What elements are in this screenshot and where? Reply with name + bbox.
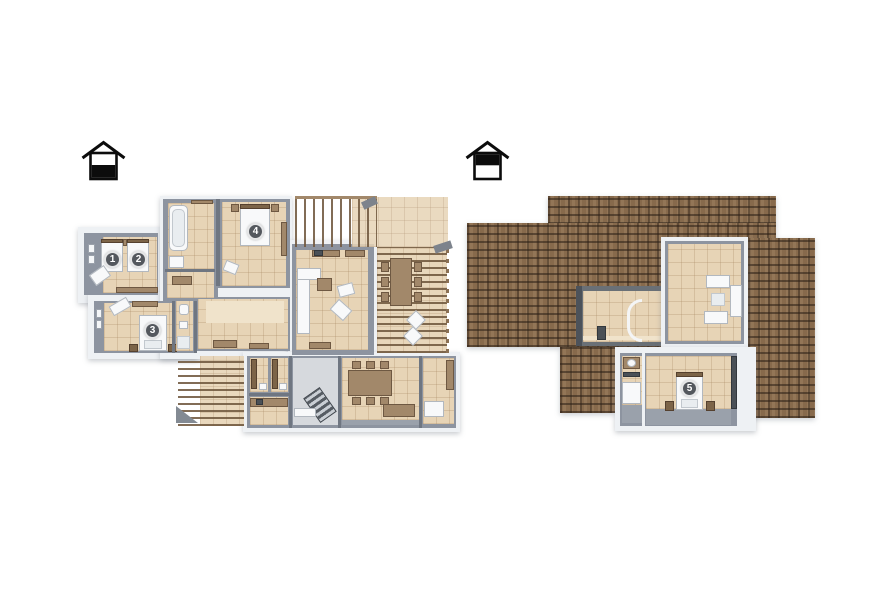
landing-wall-edge [576,286,582,346]
stair-post [597,326,606,340]
wall-shadow [731,356,737,409]
attic-floor-plan: 5 [0,0,896,597]
coffee-table [711,293,725,306]
sink [627,359,636,367]
stair-railing [627,299,642,342]
roof-section-right [748,238,815,418]
nightstand [706,401,715,411]
sofa [730,285,742,317]
bathroom-shelf [623,372,640,377]
bed-5-footboard [681,399,698,408]
house-attic-floor-icon [465,140,510,181]
landing-floor [583,291,661,342]
nightstand [665,401,674,411]
floorplan-canvas: 1 2 3 4 [0,0,896,597]
roof-section-top [548,196,776,224]
armchair [706,275,730,288]
bed-5-headboard [676,372,703,377]
interior-wall [642,353,645,426]
ensuite-gray-floor [622,405,642,423]
room-marker-5: 5 [681,380,698,397]
armchair [704,311,728,324]
roof-section-lower [560,347,615,413]
landing-step-edge [583,336,661,340]
bedroom-5-balcony-floor [646,409,731,425]
bathtub [622,382,641,404]
